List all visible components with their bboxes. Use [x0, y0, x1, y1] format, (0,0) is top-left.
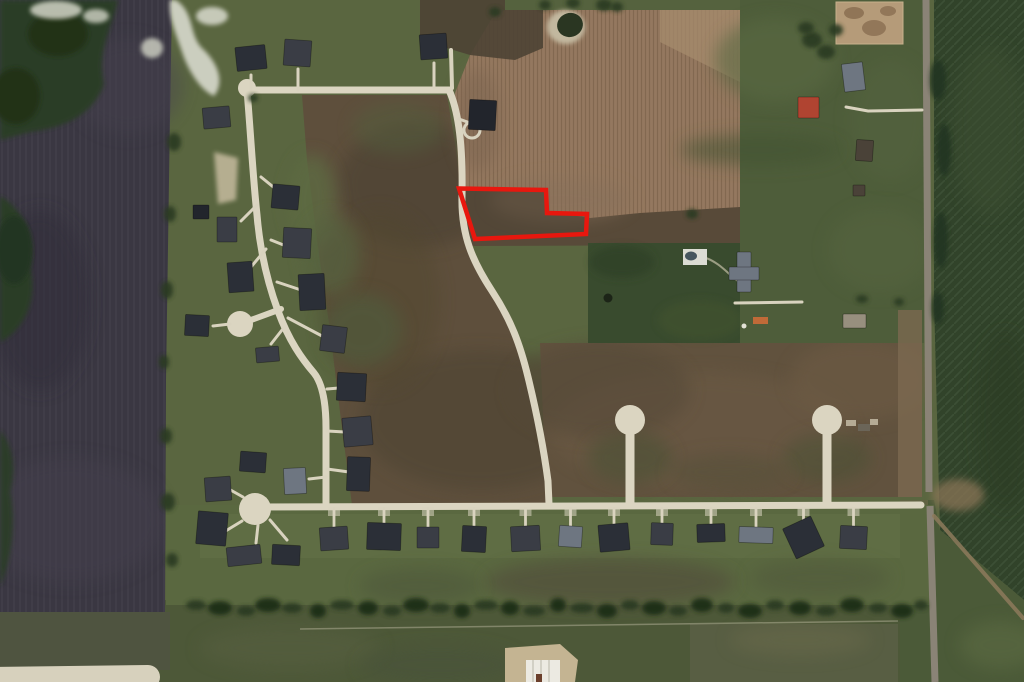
tree: [430, 603, 450, 613]
tree: [255, 598, 281, 612]
house-roof: [184, 314, 209, 336]
tree: [829, 24, 843, 36]
tree: [766, 600, 784, 610]
tree: [686, 209, 698, 219]
tree: [330, 600, 354, 610]
tree: [160, 428, 172, 444]
house-roof: [843, 314, 866, 328]
house-roof: [367, 522, 402, 550]
tree: [237, 606, 255, 616]
driveway-apron: [848, 507, 860, 516]
driveway: [213, 324, 230, 326]
tree: [789, 601, 811, 615]
house-roof: [196, 511, 229, 546]
dark-green-block: [588, 243, 742, 343]
tree: [550, 598, 566, 612]
tree: [891, 604, 913, 618]
right-crop-field: [934, 0, 1024, 600]
tree: [597, 604, 617, 618]
house-roof: [342, 416, 373, 447]
house-roof: [461, 525, 486, 552]
tree: [570, 603, 594, 613]
tree: [718, 603, 734, 613]
cul-de-sac: [615, 405, 645, 435]
tree: [738, 604, 762, 618]
tree: [856, 295, 868, 303]
orange-trailer: [753, 317, 768, 324]
driveway-apron: [565, 507, 577, 516]
country-road-south: [930, 506, 935, 682]
house-roof: [739, 526, 774, 543]
driveway-apron: [608, 507, 620, 516]
house-roof: [853, 185, 865, 196]
house-roof: [283, 39, 312, 67]
tree: [166, 553, 178, 567]
country-road-north: [926, 0, 929, 492]
tree: [934, 212, 948, 268]
tree: [358, 601, 378, 615]
driveway-apron: [656, 507, 668, 516]
tree: [932, 292, 944, 324]
house-roof: [510, 525, 540, 551]
tree: [248, 94, 258, 102]
house-roof: [202, 106, 231, 129]
tree: [642, 601, 666, 615]
house-roof: [697, 524, 726, 543]
tree: [474, 600, 498, 610]
driveway: [327, 431, 345, 432]
tree: [816, 606, 836, 616]
driveway-apron: [468, 507, 480, 516]
cul-de-sac: [812, 405, 842, 435]
tree: [310, 604, 326, 618]
house-roof: [298, 273, 326, 310]
brown-field-east: [510, 340, 930, 497]
aerial-listing-photo: [0, 0, 1024, 682]
farmhouse-driveway: [735, 302, 802, 303]
house-roof: [855, 139, 873, 161]
terrain-layer: [0, 0, 1024, 682]
equipment: [870, 419, 878, 425]
house-roof: [651, 523, 674, 546]
house-roof: [319, 526, 349, 551]
house-roof: [239, 451, 266, 473]
house-roof: [283, 467, 306, 494]
house-roof: [841, 62, 865, 92]
house-roof: [468, 99, 497, 130]
sand-patch: [214, 152, 238, 204]
house-roof: [282, 227, 312, 258]
tree: [840, 598, 864, 612]
house-roof: [417, 527, 439, 548]
driveway-apron: [750, 507, 762, 516]
equipment: [846, 420, 856, 426]
house-roof: [271, 184, 300, 210]
tree: [669, 606, 687, 616]
tree: [186, 600, 206, 610]
tree: [937, 124, 951, 176]
tree: [802, 32, 822, 48]
tree: [621, 600, 639, 610]
driveway-apron: [328, 507, 340, 516]
house-roof: [798, 97, 819, 118]
tree: [383, 606, 401, 616]
metal-building: [526, 660, 560, 682]
tree: [930, 60, 946, 100]
tree: [914, 600, 928, 610]
house-roof: [320, 325, 348, 354]
tree: [403, 598, 429, 612]
equipment: [858, 424, 870, 431]
house-roof: [336, 372, 366, 401]
horse-paddock: [836, 2, 903, 44]
house-roof: [598, 523, 630, 553]
driveway-apron: [378, 507, 390, 516]
driveway: [309, 477, 326, 479]
tree: [159, 355, 169, 369]
satellite-image: [0, 0, 1024, 682]
tree: [161, 493, 175, 511]
house-roof: [729, 267, 759, 280]
tree: [454, 604, 470, 618]
tree: [501, 601, 519, 615]
house-roof: [235, 44, 267, 71]
tree: [894, 298, 904, 306]
tree: [523, 606, 545, 616]
bottom-left-road: [0, 677, 148, 679]
house-roof: [204, 476, 232, 502]
tree: [167, 133, 181, 151]
driveway-apron: [422, 507, 434, 516]
tree: [798, 22, 814, 34]
tree: [611, 2, 623, 12]
tree: [489, 7, 501, 17]
tree: [539, 0, 551, 10]
driveway-apron: [520, 507, 532, 516]
tree: [691, 598, 713, 612]
tree: [164, 206, 176, 222]
tree: [208, 601, 232, 615]
subdivision-road-bottom: [256, 505, 921, 507]
house-roof: [255, 346, 279, 363]
driveway: [256, 525, 258, 543]
tree: [161, 281, 173, 299]
house-lane: [451, 50, 452, 88]
house-roof: [346, 457, 370, 492]
house-roof: [227, 261, 254, 293]
tree: [817, 45, 835, 59]
driveway-apron: [705, 507, 717, 516]
driveway-apron: [798, 507, 810, 516]
tree: [282, 603, 302, 613]
tree: [869, 603, 887, 613]
house-roof: [839, 525, 867, 549]
house-roof: [419, 33, 448, 60]
house-roof: [558, 525, 582, 548]
house-roof: [226, 544, 262, 566]
house-roof: [217, 217, 237, 242]
house-roof: [193, 205, 209, 219]
house-roof: [271, 544, 300, 565]
